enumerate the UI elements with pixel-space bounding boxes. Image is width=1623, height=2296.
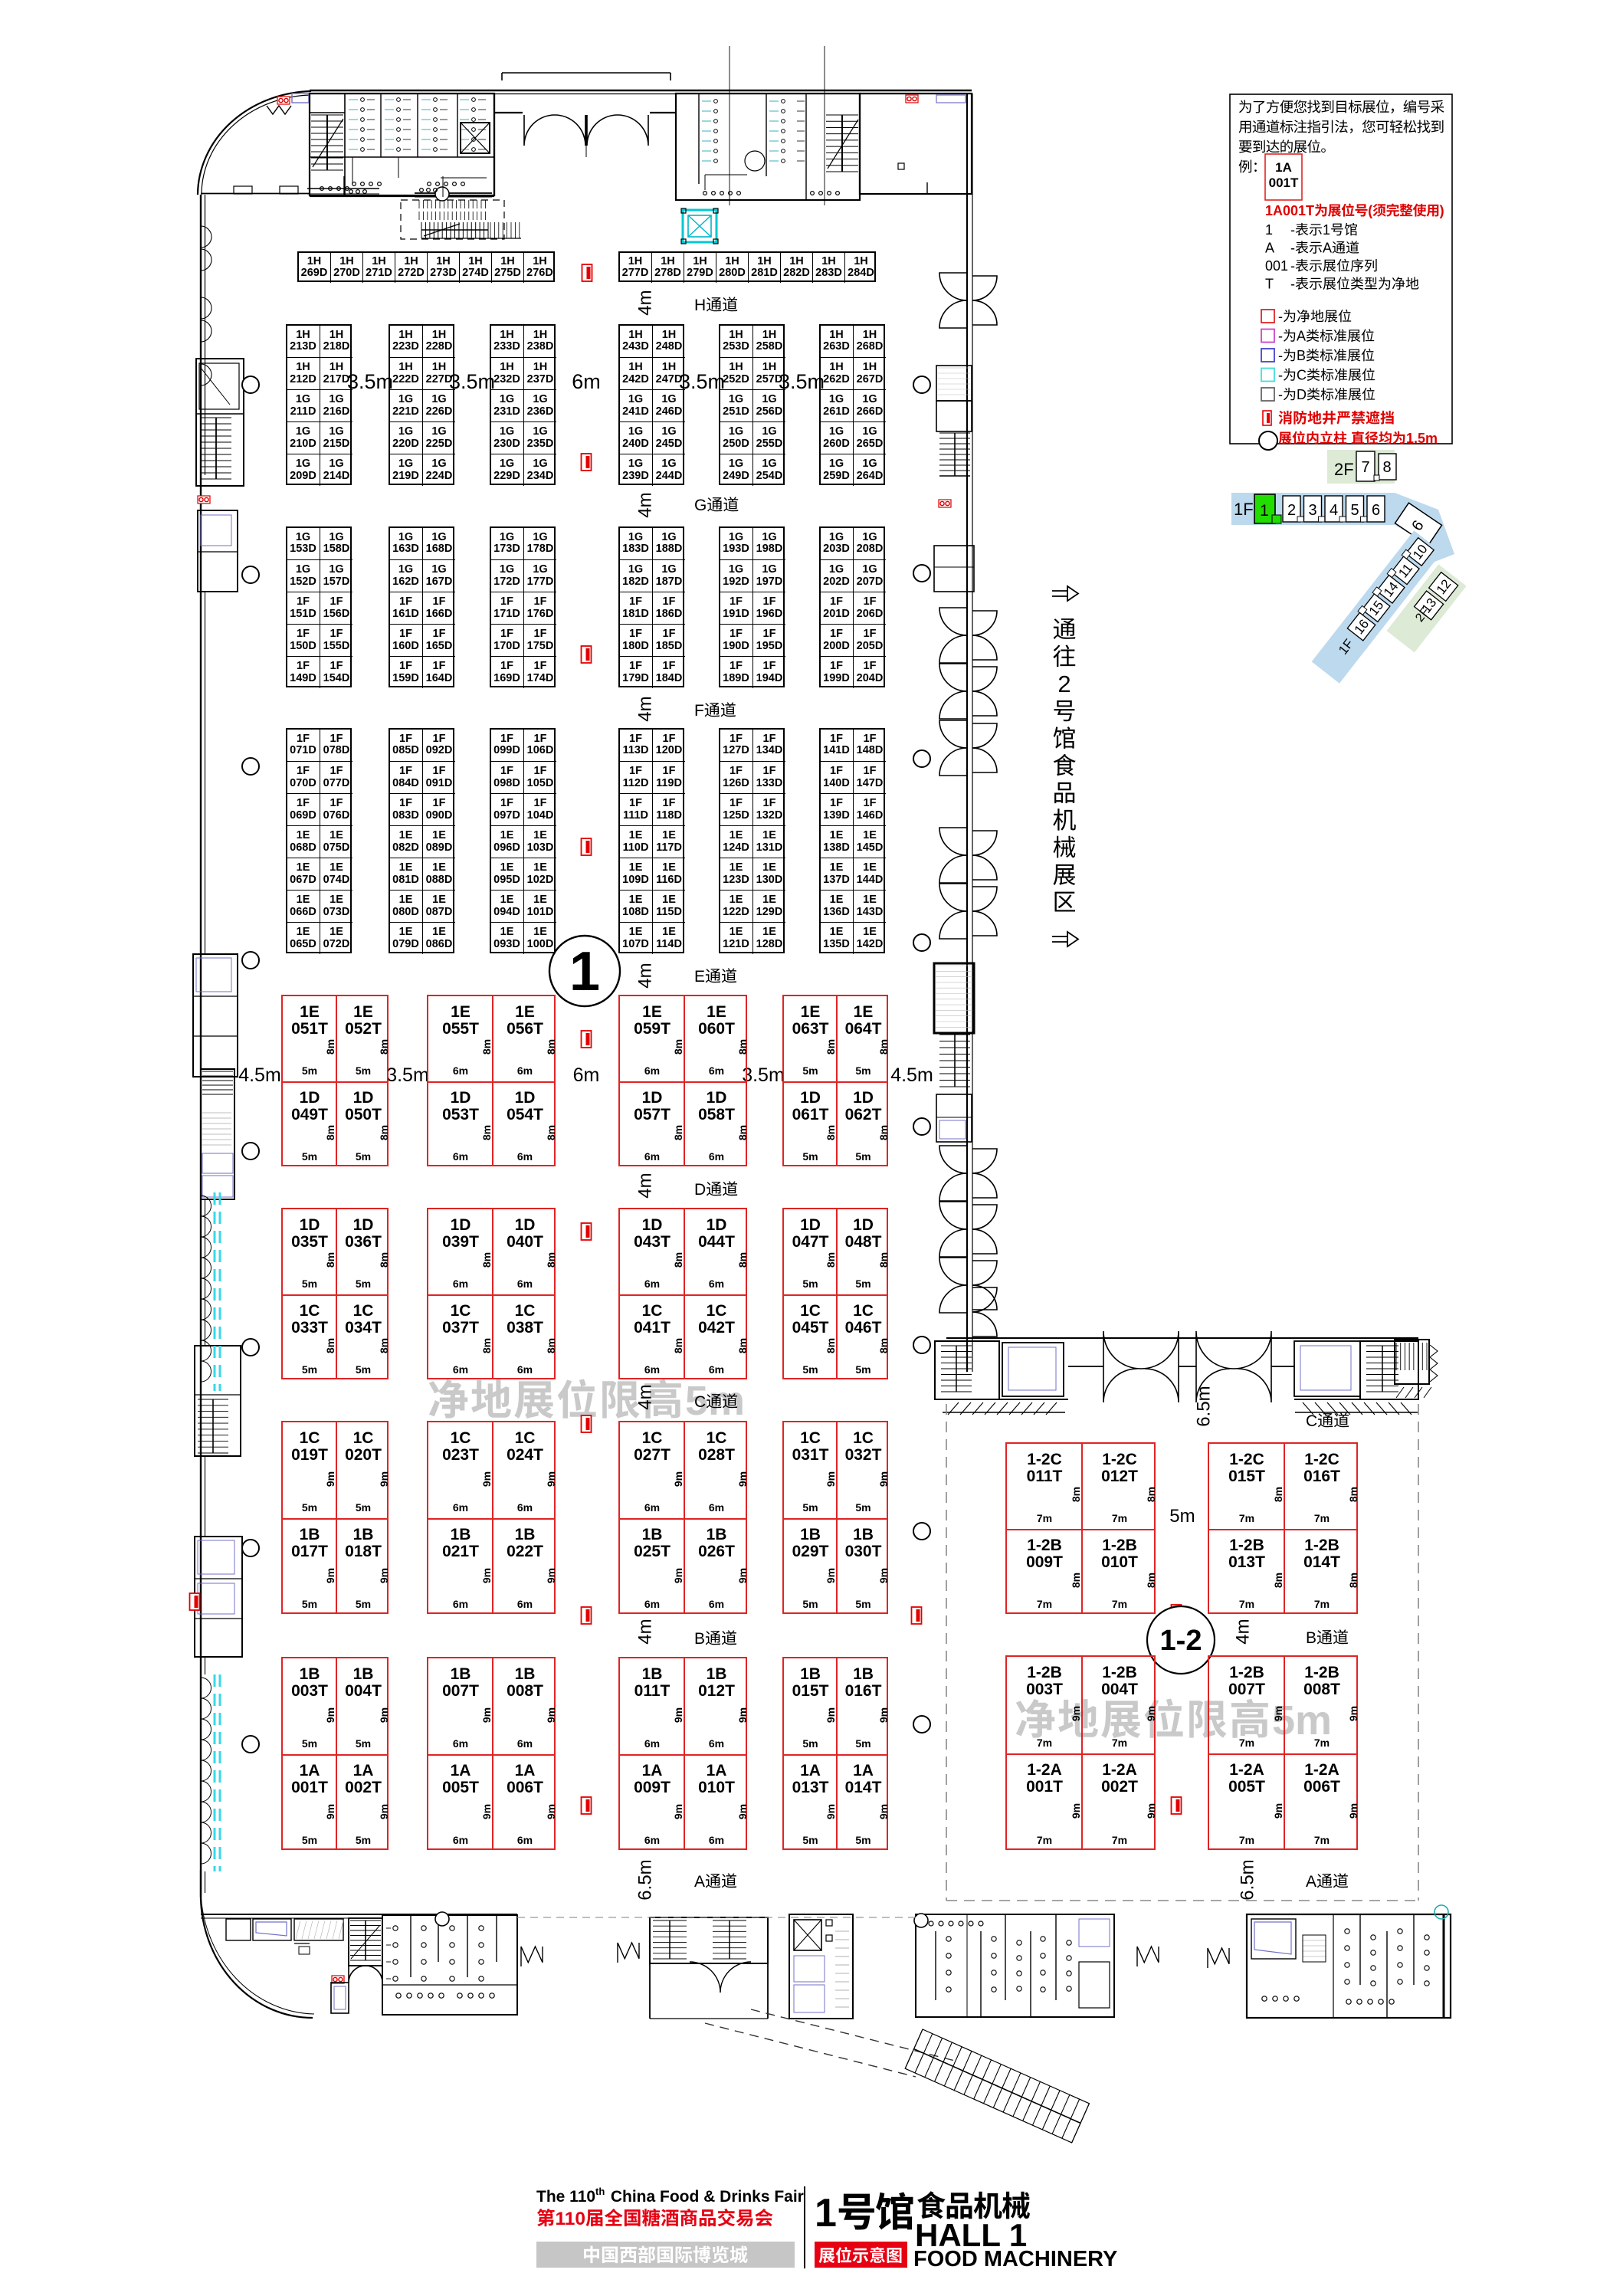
svg-text:4m: 4m — [634, 290, 655, 315]
svg-text:FOOD MACHINERY: FOOD MACHINERY — [913, 2247, 1117, 2271]
svg-text:A: A — [1306, 1873, 1316, 1891]
svg-text:4.5m: 4.5m — [238, 1064, 281, 1086]
svg-text:4m: 4m — [634, 1619, 655, 1644]
svg-text:4m: 4m — [634, 696, 655, 721]
svg-text:6.5m: 6.5m — [1193, 1386, 1214, 1426]
svg-text:6m: 6m — [572, 370, 601, 393]
svg-text:F: F — [694, 702, 704, 720]
svg-text:C: C — [1297, 368, 1307, 383]
svg-text:5: 5 — [1350, 502, 1359, 519]
svg-text:1.5m: 1.5m — [1406, 431, 1438, 446]
svg-text:6.5m: 6.5m — [1237, 1859, 1257, 1900]
svg-text:110: 110 — [556, 2209, 586, 2229]
svg-text:1: 1 — [1260, 502, 1269, 520]
svg-text:2F: 2F — [1334, 460, 1354, 479]
svg-text:2: 2 — [1287, 502, 1296, 519]
svg-text:8: 8 — [1382, 459, 1391, 476]
svg-text:001T: 001T — [1269, 175, 1299, 190]
svg-text:4m: 4m — [1232, 1619, 1253, 1644]
svg-text:(: ( — [1368, 203, 1372, 218]
svg-text:7: 7 — [1361, 459, 1369, 476]
svg-text:1F: 1F — [1234, 500, 1254, 519]
svg-text:1-2: 1-2 — [1160, 1625, 1202, 1657]
svg-text:1A001T: 1A001T — [1265, 203, 1314, 218]
svg-text:-: - — [1278, 309, 1283, 324]
svg-text:001: 001 — [1265, 258, 1288, 274]
svg-text:-: - — [1278, 387, 1283, 402]
svg-text:1A: 1A — [1275, 160, 1292, 175]
svg-text:3.5m: 3.5m — [779, 370, 825, 393]
svg-text:A: A — [1323, 241, 1332, 256]
svg-text:1: 1 — [815, 2191, 837, 2235]
svg-text:1: 1 — [1323, 222, 1330, 238]
svg-text:A: A — [694, 1873, 705, 1891]
svg-text:-: - — [1278, 329, 1283, 344]
svg-text:1: 1 — [1265, 222, 1273, 238]
svg-text:5m: 5m — [1169, 1506, 1195, 1527]
svg-text:-: - — [1278, 348, 1283, 363]
svg-text:D: D — [1297, 387, 1307, 402]
svg-text:3.5m: 3.5m — [347, 370, 393, 393]
svg-text:The 110: The 110 — [536, 2188, 595, 2206]
svg-text:4.5m: 4.5m — [890, 1064, 933, 1086]
svg-text:): ) — [1440, 203, 1444, 218]
svg-text:C: C — [1306, 1412, 1317, 1430]
svg-text:D: D — [694, 1181, 706, 1199]
svg-text:2: 2 — [1057, 671, 1071, 697]
svg-text:6.5m: 6.5m — [634, 1859, 655, 1900]
svg-text:G: G — [694, 497, 707, 514]
svg-text:3.5m: 3.5m — [449, 370, 495, 393]
svg-text:C: C — [694, 1393, 706, 1411]
svg-text:-: - — [1290, 222, 1295, 238]
svg-text:1: 1 — [569, 941, 600, 1002]
svg-text:A: A — [1297, 329, 1306, 344]
svg-text:-: - — [1290, 258, 1295, 274]
svg-text:H: H — [694, 297, 706, 314]
svg-text:-: - — [1290, 241, 1295, 256]
svg-text:E: E — [694, 968, 705, 986]
svg-text:4m: 4m — [634, 492, 655, 517]
svg-text:4m: 4m — [634, 963, 655, 988]
svg-text:th: th — [595, 2186, 605, 2197]
svg-text:A: A — [1265, 241, 1274, 256]
svg-text:B: B — [1297, 348, 1306, 363]
svg-text:6m: 6m — [573, 1064, 600, 1086]
svg-text:T: T — [1265, 277, 1274, 292]
svg-text:B: B — [694, 1630, 705, 1648]
svg-text:6: 6 — [1372, 502, 1380, 519]
svg-text:B: B — [1306, 1629, 1316, 1647]
svg-text:3.5m: 3.5m — [386, 1064, 429, 1086]
svg-text:-: - — [1278, 368, 1283, 383]
svg-text:-: - — [1290, 277, 1295, 292]
svg-text:3: 3 — [1308, 502, 1316, 519]
svg-text:4m: 4m — [634, 1173, 655, 1198]
svg-text:4m: 4m — [634, 1384, 655, 1409]
svg-text:China Food & Drinks Fair: China Food & Drinks Fair — [606, 2188, 804, 2206]
svg-text:4: 4 — [1330, 502, 1338, 519]
